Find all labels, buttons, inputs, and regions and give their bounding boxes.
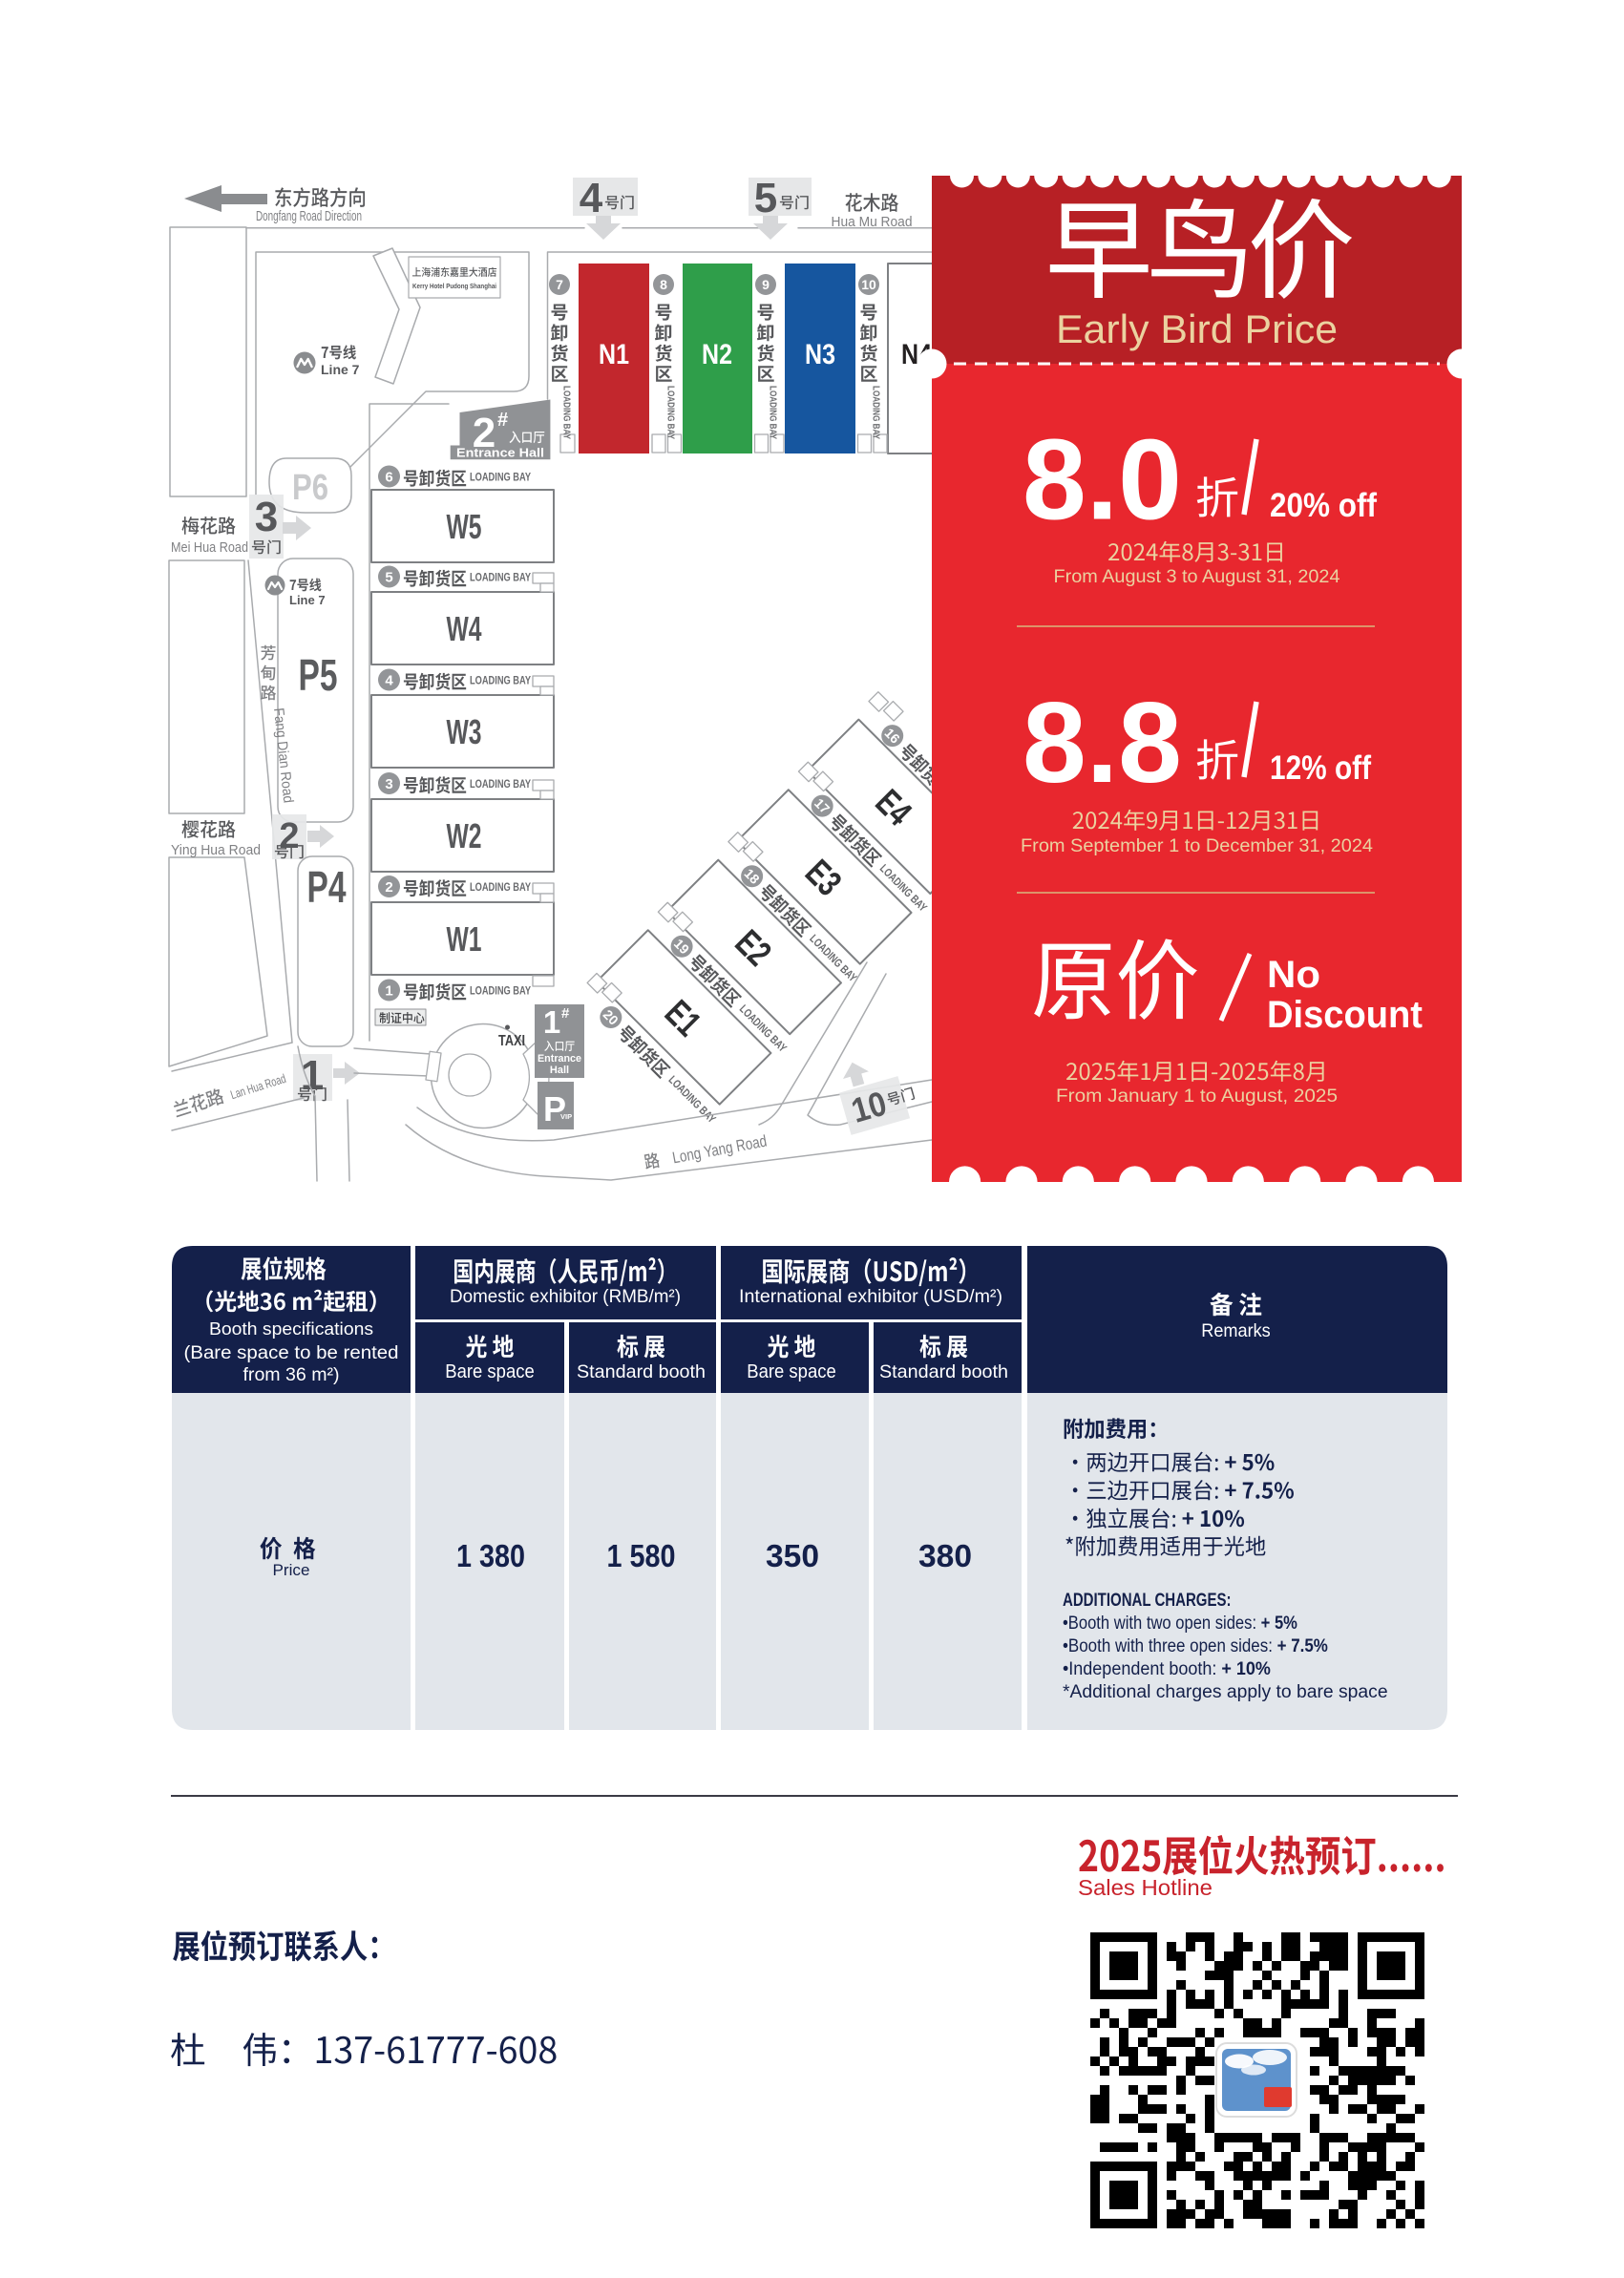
svg-text:Domestic exhibitor (RMB/m²): Domestic exhibitor (RMB/m²) xyxy=(450,1286,681,1307)
svg-text:6: 6 xyxy=(385,470,392,486)
svg-text:•Booth with three open sides:: •Booth with three open sides: + 7.5% xyxy=(1063,1635,1328,1656)
svg-text:Standard booth: Standard booth xyxy=(879,1361,1008,1382)
svg-text:Remarks: Remarks xyxy=(1201,1320,1271,1341)
svg-text:VIP: VIP xyxy=(560,1112,572,1121)
svg-text:ADDITIONAL CHARGES:: ADDITIONAL CHARGES: xyxy=(1063,1591,1232,1611)
svg-text:Hall: Hall xyxy=(550,1065,569,1076)
svg-text:1 580: 1 580 xyxy=(607,1538,676,1573)
svg-text:LOADING BAY: LOADING BAY xyxy=(561,386,573,439)
svg-text:8.8: 8.8 xyxy=(1023,679,1182,807)
svg-text:Bare space: Bare space xyxy=(445,1361,535,1382)
svg-text:W4: W4 xyxy=(447,609,482,648)
svg-text:W2: W2 xyxy=(447,816,482,855)
svg-text:Hua Mu Road: Hua Mu Road xyxy=(832,214,913,230)
svg-text:Lan Hua Road: Lan Hua Road xyxy=(229,1071,288,1102)
svg-text:12% off: 12% off xyxy=(1270,749,1371,787)
svg-text:From September 1 to December 3: From September 1 to December 31, 2024 xyxy=(1021,835,1373,856)
svg-text:International exhibitor (USD/m: International exhibitor (USD/m²) xyxy=(739,1286,1002,1307)
svg-text:3: 3 xyxy=(255,494,278,540)
svg-text:Kerry Hotel Pudong Shanghai: Kerry Hotel Pudong Shanghai xyxy=(412,282,496,290)
svg-text:Sales Hotline: Sales Hotline xyxy=(1078,1875,1213,1900)
svg-text:From August 3 to August 31, 20: From August 3 to August 31, 2024 xyxy=(1054,566,1340,587)
svg-text:*Additional charges apply to b: *Additional charges apply to bare space xyxy=(1063,1682,1388,1702)
svg-text:2: 2 xyxy=(385,879,392,896)
svg-text:N2: N2 xyxy=(702,339,732,370)
svg-text:Price: Price xyxy=(273,1561,310,1579)
svg-text:10: 10 xyxy=(861,277,876,292)
svg-text:1 380: 1 380 xyxy=(456,1538,525,1573)
svg-text:P5: P5 xyxy=(299,650,338,700)
svg-text:4: 4 xyxy=(580,175,603,221)
svg-text:5: 5 xyxy=(754,175,777,221)
svg-text:LOADING BAY: LOADING BAY xyxy=(871,386,882,439)
svg-text:P6: P6 xyxy=(292,468,328,508)
svg-text:#: # xyxy=(497,410,508,431)
svg-text:P: P xyxy=(543,1089,566,1128)
svg-text:No: No xyxy=(1267,954,1320,996)
svg-text:Line 7: Line 7 xyxy=(289,593,326,607)
svg-text:#: # xyxy=(561,1005,570,1022)
svg-text:20% off: 20% off xyxy=(1270,487,1377,524)
svg-text:N3: N3 xyxy=(805,339,835,370)
svg-text:P4: P4 xyxy=(307,862,347,912)
svg-text:LOADING BAY: LOADING BAY xyxy=(470,674,531,687)
svg-text:Mei Hua Road: Mei Hua Road xyxy=(171,539,248,556)
svg-text:W5: W5 xyxy=(447,507,482,546)
svg-text:From January 1 to August, 2025: From January 1 to August, 2025 xyxy=(1056,1086,1338,1107)
svg-text:Early Bird Price: Early Bird Price xyxy=(1056,306,1338,351)
svg-text:from 36 m²): from 36 m²) xyxy=(243,1365,340,1385)
svg-text:Entrance Hall: Entrance Hall xyxy=(456,446,544,460)
svg-text:Booth specifications: Booth specifications xyxy=(209,1318,373,1339)
svg-text:1: 1 xyxy=(543,1004,560,1040)
svg-text:•Independent booth: + 10%: •Independent booth: + 10% xyxy=(1063,1658,1271,1679)
svg-text:TAXI: TAXI xyxy=(498,1033,525,1049)
svg-text:3: 3 xyxy=(385,776,392,792)
svg-text:7: 7 xyxy=(556,277,563,292)
svg-text:N1: N1 xyxy=(599,339,629,370)
svg-text:(Bare space to be rented: (Bare space to be rented xyxy=(184,1343,399,1363)
svg-text:LOADING BAY: LOADING BAY xyxy=(768,386,779,439)
svg-text:LOADING BAY: LOADING BAY xyxy=(470,984,531,998)
svg-text:Entrance: Entrance xyxy=(538,1053,581,1065)
svg-text:W3: W3 xyxy=(447,712,482,751)
svg-text:LOADING BAY: LOADING BAY xyxy=(470,471,531,484)
svg-text:1: 1 xyxy=(385,983,392,1000)
svg-text:Dongfang Road Direction: Dongfang Road Direction xyxy=(256,208,362,224)
svg-text:Bare space: Bare space xyxy=(747,1361,836,1382)
svg-text:LOADING BAY: LOADING BAY xyxy=(470,777,531,791)
svg-text:Discount: Discount xyxy=(1267,994,1423,1036)
svg-text:8.0: 8.0 xyxy=(1023,416,1182,544)
svg-text:•Booth with two open sides: +: •Booth with two open sides: + 5% xyxy=(1063,1613,1297,1633)
svg-text:380: 380 xyxy=(918,1538,972,1573)
svg-text:LOADING BAY: LOADING BAY xyxy=(665,386,677,439)
svg-text:5: 5 xyxy=(385,570,392,586)
svg-text:Ying Hua Road: Ying Hua Road xyxy=(171,842,261,858)
svg-text:Line 7: Line 7 xyxy=(321,362,360,377)
svg-text:9: 9 xyxy=(762,277,770,292)
svg-text:LOADING BAY: LOADING BAY xyxy=(470,571,531,584)
svg-text:4: 4 xyxy=(385,673,393,689)
svg-text:W1: W1 xyxy=(447,919,482,959)
svg-text:2: 2 xyxy=(279,816,299,856)
svg-text:Standard booth: Standard booth xyxy=(577,1361,706,1382)
svg-text:8: 8 xyxy=(660,277,667,292)
svg-text:350: 350 xyxy=(766,1538,819,1573)
svg-text:LOADING BAY: LOADING BAY xyxy=(470,880,531,894)
